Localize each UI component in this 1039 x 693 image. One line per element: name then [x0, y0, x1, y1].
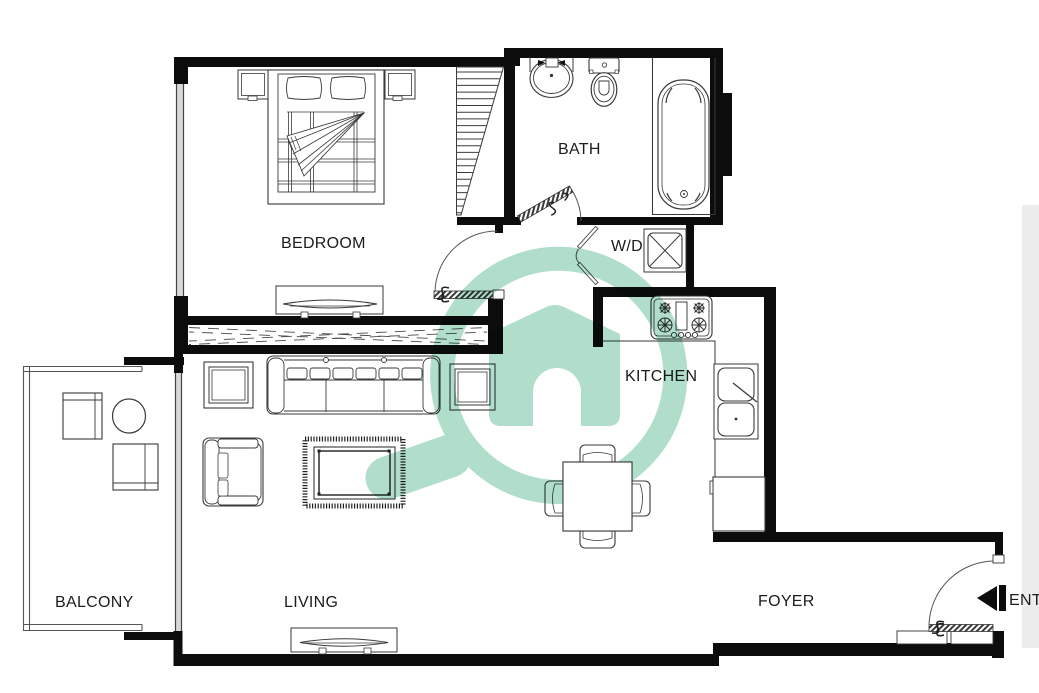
svg-text:BATH: BATH [558, 141, 601, 158]
svg-text:W/D: W/D [611, 238, 643, 255]
svg-text:ENTRY: ENTRY [1009, 592, 1039, 609]
svg-text:LIVING: LIVING [284, 594, 338, 611]
svg-text:BALCONY: BALCONY [55, 594, 134, 611]
svg-text:BEDROOM: BEDROOM [281, 235, 366, 252]
svg-text:FOYER: FOYER [758, 593, 815, 610]
